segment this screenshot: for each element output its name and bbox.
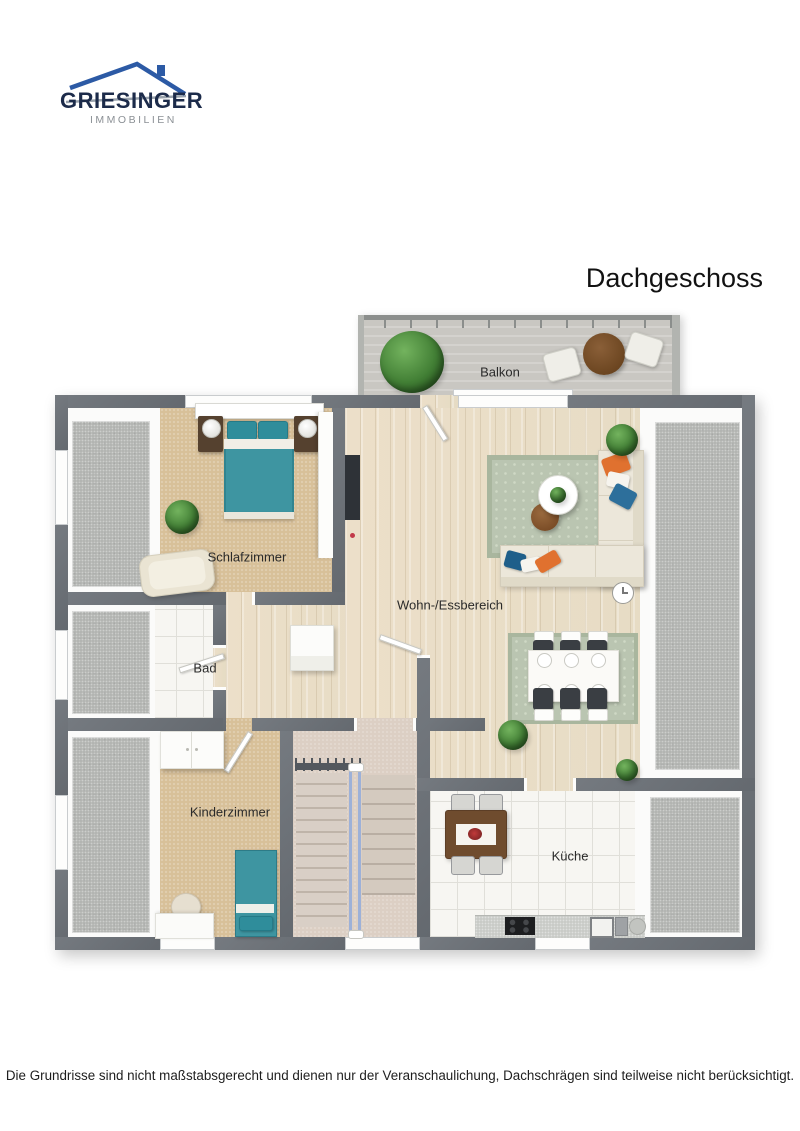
floorplan-page: GRIESINGER IMMOBILIEN Dachgeschoss [0,0,800,1131]
logo-subtitle: IMMOBILIEN [90,114,177,126]
stairs-flight-right [362,775,415,895]
wardrobe-handle [195,748,198,751]
wall [252,592,345,605]
table-plant [550,487,566,503]
wall [55,395,185,408]
plant [498,720,528,750]
cooktop [505,917,535,935]
double-bed [224,449,294,512]
flower-bouquet [468,828,482,840]
schlafzimmer-roof-slope [72,421,150,587]
pillow [239,916,273,931]
door-jamb [413,718,416,731]
dining-chair [533,688,553,710]
wardrobe-seam [191,732,192,768]
plant [165,500,199,534]
stair-handrail [358,767,361,935]
tv-board [345,455,360,520]
wall [420,937,535,950]
wall [568,395,755,408]
wall [742,395,755,950]
sofa-seam [595,546,596,577]
balcony-rail-right [672,315,680,400]
chair-backrest [588,709,608,721]
floorplan: Balkon Schlafzimmer Wohn-/Essbereich Bad… [55,315,755,950]
chair-backrest [561,709,581,721]
lamp [298,419,317,438]
decor-dot [350,533,355,538]
wall [55,700,68,795]
window-left [55,795,68,870]
door-jamb [417,655,430,658]
wall [213,605,226,645]
handrail-cap [348,930,364,939]
wall [55,937,160,950]
hall-cabinet [290,625,334,671]
plate [564,653,579,668]
single-bed [235,850,277,937]
room-balkon [358,315,680,400]
wall [215,937,345,950]
wall [252,718,357,731]
door-jamb [354,718,357,731]
wardrobe [160,731,224,769]
wardrobe-handle [186,748,189,751]
sofa-seam [599,540,633,541]
bed-frame [224,512,294,519]
handrail-cap [348,763,364,772]
chair-backrest [534,709,554,721]
balcony-table [583,333,625,375]
wall [417,655,430,937]
wohnbereich-roof-slope [655,422,740,770]
stair-handrail [349,767,352,935]
room-label-bad: Bad [193,661,216,676]
wall [55,395,68,450]
room-label-kinderzimmer: Kinderzimmer [190,805,270,820]
wall [417,778,527,791]
window-balkon-door [458,395,568,408]
lamp [202,419,221,438]
kinderzimmer-roof-slope [72,737,150,933]
wall [280,731,293,937]
wall [573,778,755,791]
clock [612,582,634,604]
pillow [227,421,257,440]
clock-hand [622,592,628,594]
coffee-table [538,475,578,515]
window-kueche [535,937,590,950]
desk [155,913,214,939]
dining-chair [560,688,580,710]
kitchen-canister [629,918,646,935]
disclaimer-text: Die Grundrisse sind nicht maßstabsgerech… [0,1068,800,1083]
kitchen-chair [479,856,503,875]
door-jamb [573,778,576,791]
wall [68,718,223,731]
door-jamb [213,687,226,690]
bad-roof-slope [72,611,150,714]
balcony-rail-left [358,315,364,400]
bed-sheet [224,439,294,449]
kitchen-table [445,810,507,859]
bed-sheet [236,904,274,913]
room-label-balkon: Balkon [480,365,520,380]
room-label-kueche: Küche [552,849,589,864]
logo-name: GRIESINGER [60,88,203,113]
balcony-plant [380,331,444,393]
wardrobe [318,412,333,558]
plate [591,653,606,668]
kueche-roof-slope [650,797,740,933]
window-left [55,450,68,525]
door-jamb [524,778,527,791]
dining-chair [587,688,607,710]
page-title: Dachgeschoss [586,263,763,294]
kitchen-appliance [615,917,628,936]
hall-cabinet-front [291,656,333,670]
kitchen-chair [451,856,475,875]
plant [606,424,638,456]
window-left [55,630,68,700]
armchair-seat [148,556,207,591]
wall [312,395,420,408]
room-label-wohn-essbereich: Wohn-/Essbereich [397,598,503,613]
plate [537,653,552,668]
wall [332,408,345,592]
logo-roof-icon: GRIESINGER IMMOBILIEN [58,58,203,128]
balcony-railing [358,315,680,320]
armchair [138,548,217,599]
stairs-flight-left [296,773,347,927]
room-label-schlafzimmer: Schlafzimmer [208,550,287,565]
wall [55,525,68,630]
plant [616,759,638,781]
kitchen-sink [590,917,614,938]
pillow [258,421,288,440]
company-logo: GRIESINGER IMMOBILIEN [58,58,203,128]
wall [590,937,755,950]
door-jamb [213,645,226,648]
door-jamb [252,592,255,605]
